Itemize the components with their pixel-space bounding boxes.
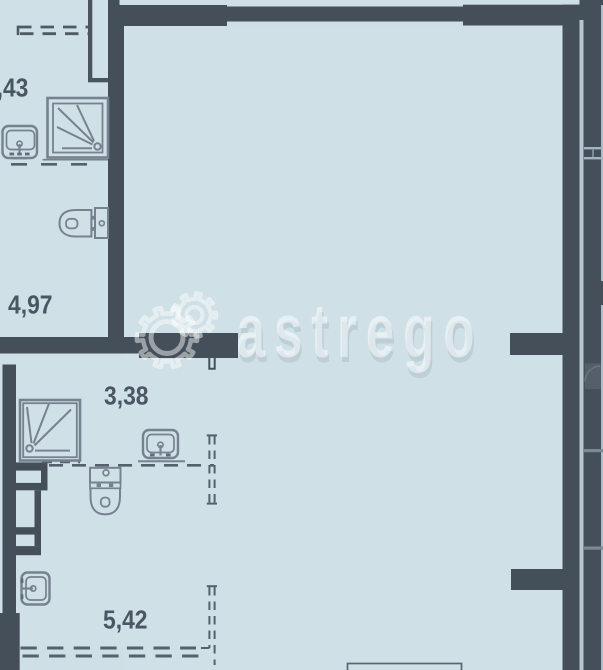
svg-text:5,42: 5,42 <box>103 606 147 635</box>
svg-text:,43: ,43 <box>0 74 28 103</box>
svg-text:3,38: 3,38 <box>104 382 148 411</box>
svg-text:astrego: astrego <box>237 289 484 373</box>
svg-text:4,97: 4,97 <box>8 291 52 320</box>
